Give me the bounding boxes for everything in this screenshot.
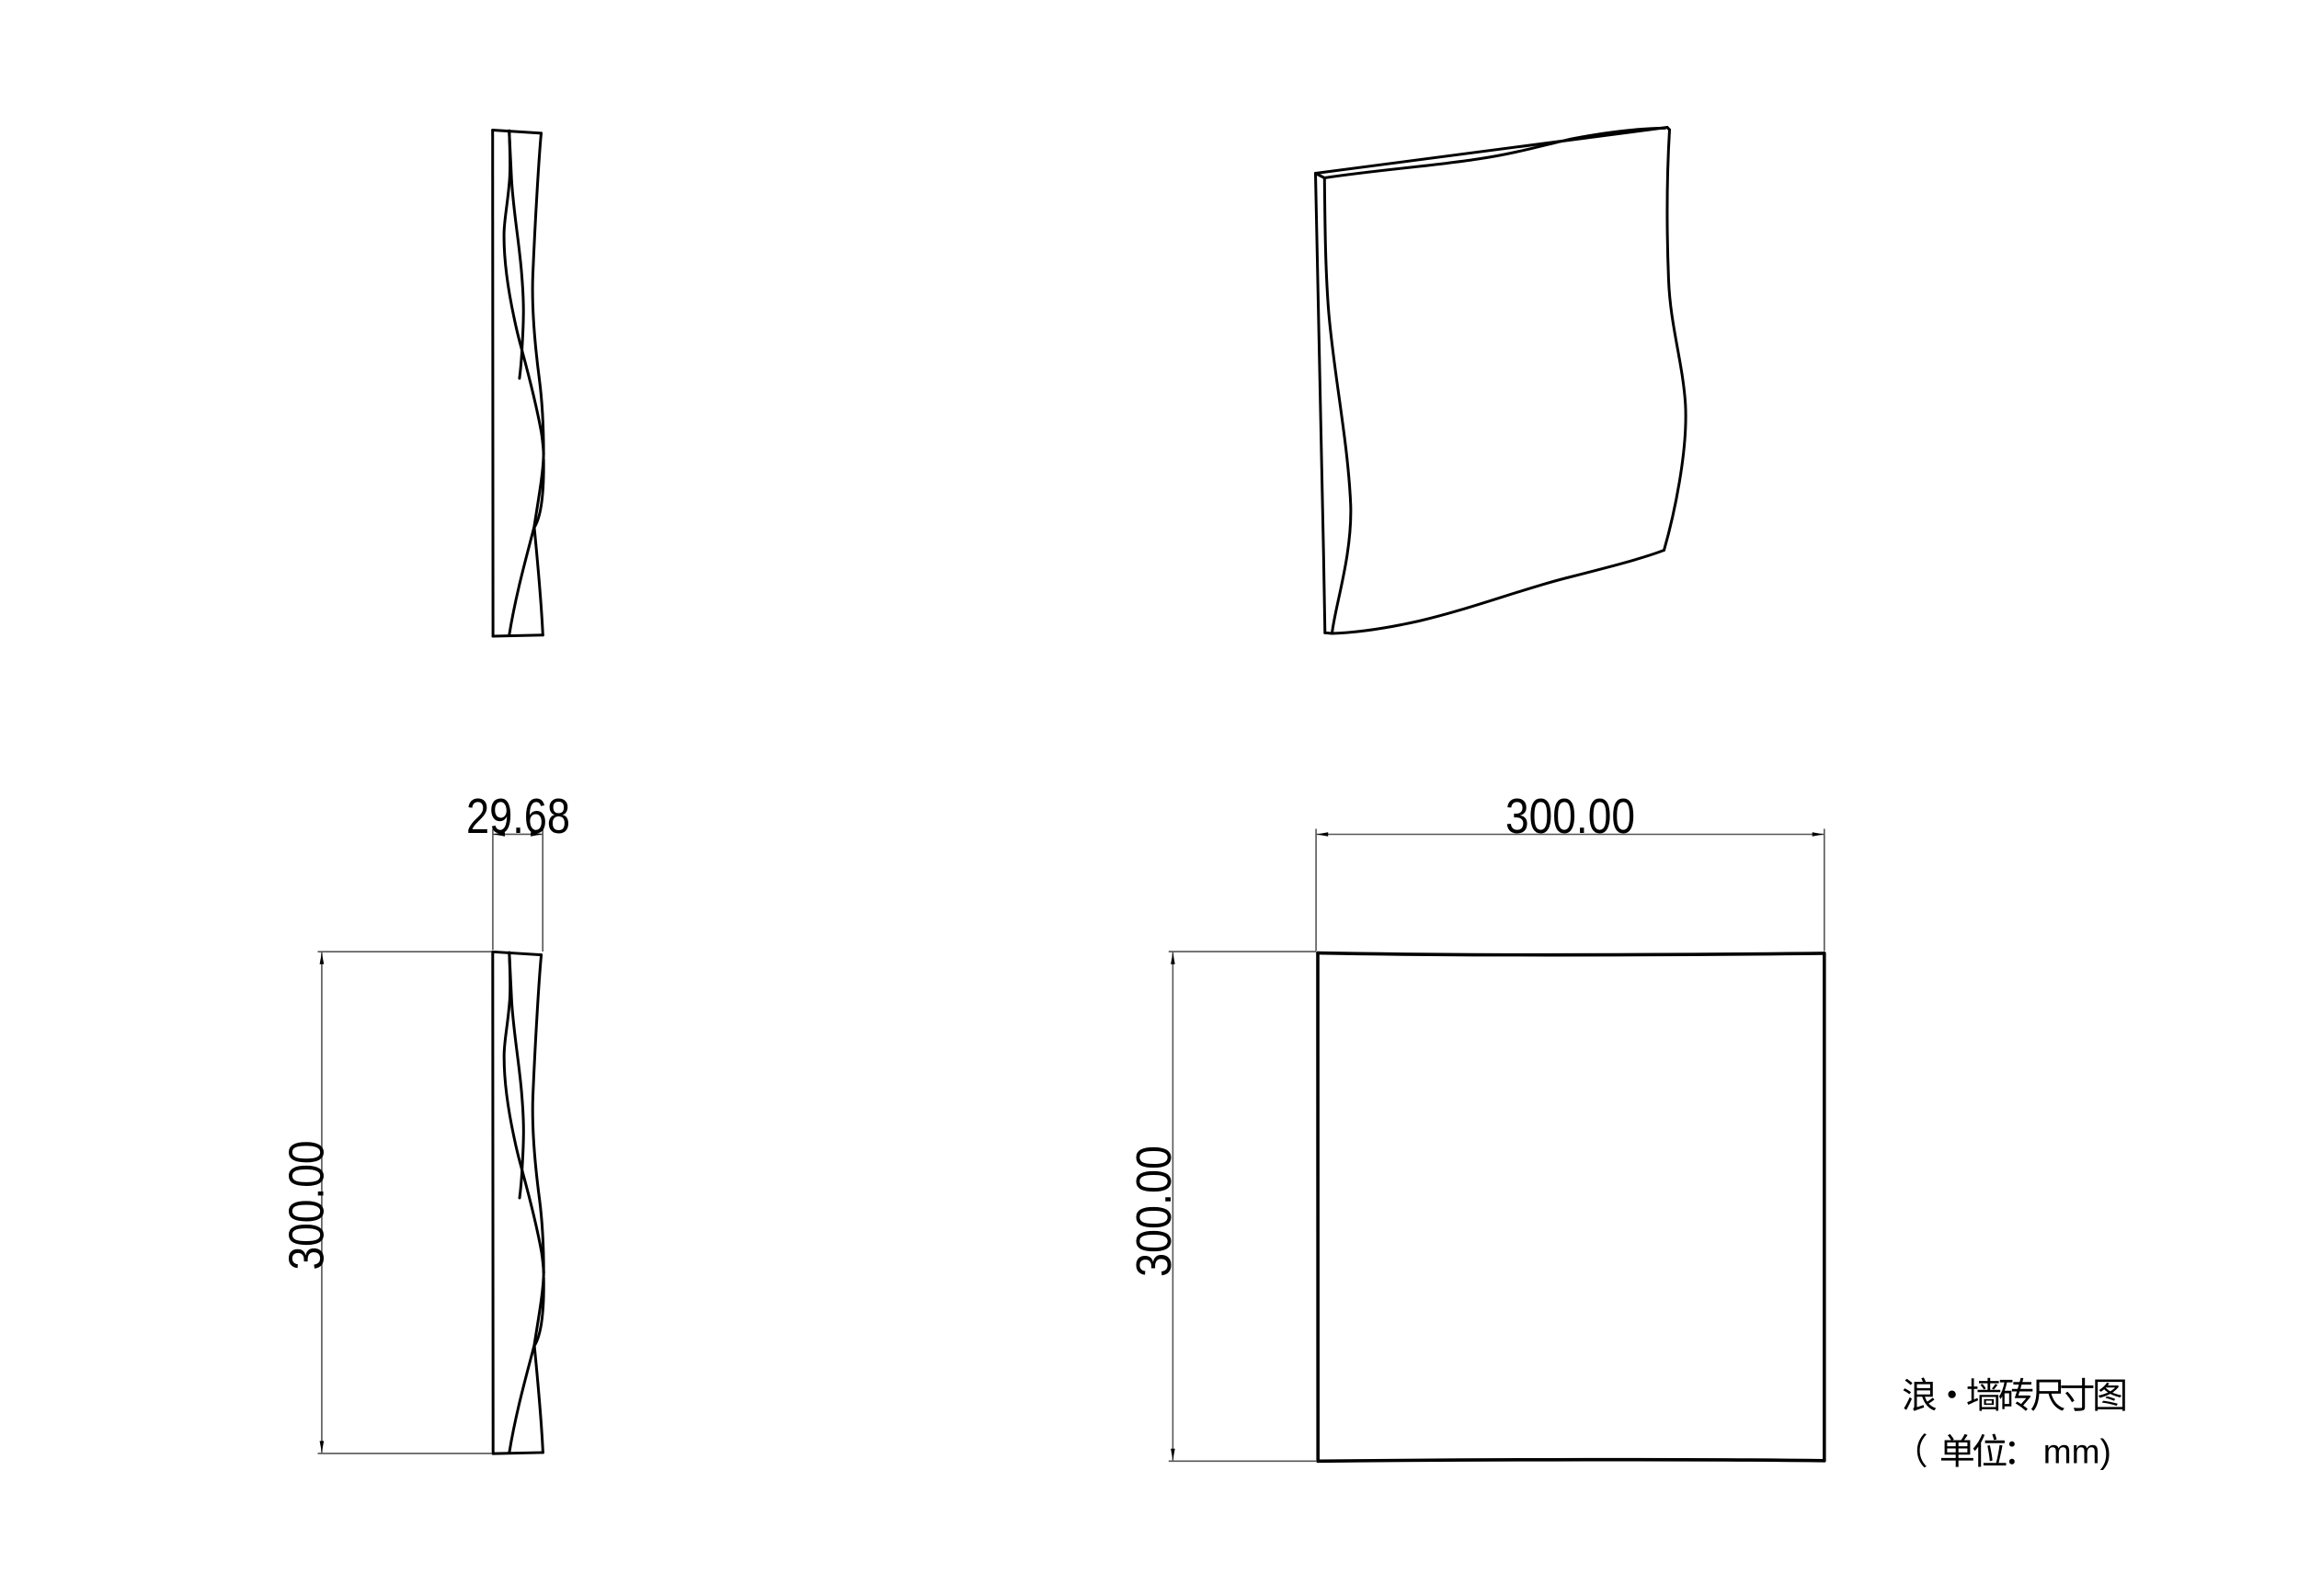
- svg-text:300.00: 300.00: [1127, 1146, 1182, 1277]
- svg-text:29.68: 29.68: [466, 789, 570, 844]
- svg-text:mm): mm): [2043, 1433, 2111, 1471]
- svg-text:300.00: 300.00: [280, 1141, 335, 1271]
- svg-text:300.00: 300.00: [1505, 789, 1635, 844]
